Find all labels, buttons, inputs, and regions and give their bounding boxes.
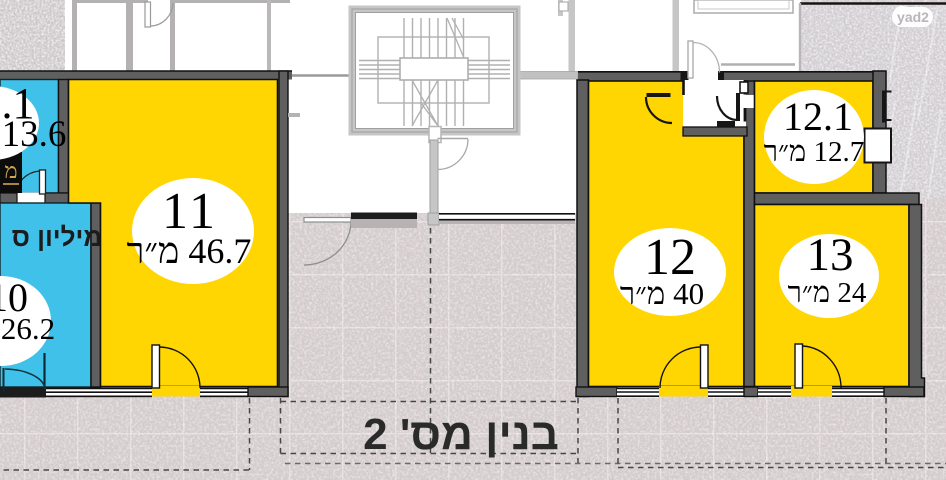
svg-text:24 מ״ר: 24 מ״ר	[788, 277, 867, 309]
svg-text:yad2: yad2	[897, 9, 929, 25]
svg-text:מיליון ס: מיליון ס	[12, 222, 103, 252]
svg-text:בנין מס' 2: בנין מס' 2	[363, 410, 559, 459]
svg-text:13: 13	[807, 229, 854, 281]
svg-text:מ: מ	[4, 158, 17, 183]
svg-text:40 מ״ר: 40 מ״ר	[620, 276, 704, 311]
svg-text:46.7 מ״ר: 46.7 מ״ר	[127, 231, 252, 271]
svg-text:13.6: 13.6	[2, 114, 67, 155]
svg-text:26.2: 26.2	[1, 311, 55, 346]
svg-text:12.1: 12.1	[783, 94, 853, 139]
svg-text:12.7 מ״ר: 12.7 מ״ר	[764, 136, 864, 168]
